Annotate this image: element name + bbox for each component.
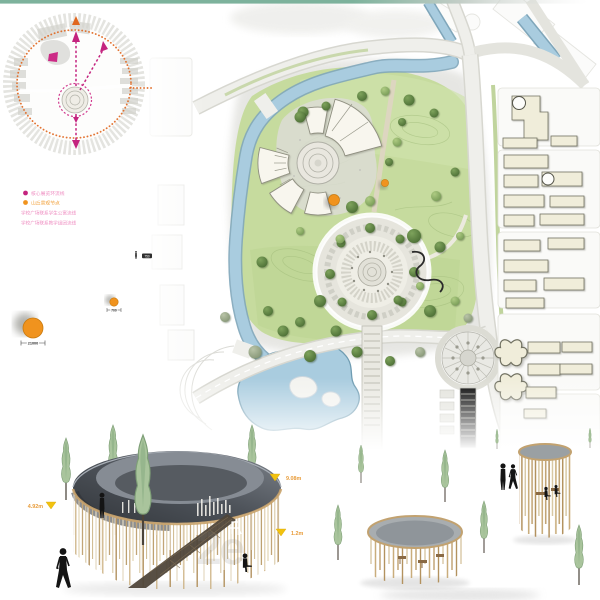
- legend-dot: [23, 191, 28, 196]
- dimension-label-small: 700: [111, 309, 117, 313]
- elevation-marker-left: 4.92m: [28, 502, 56, 510]
- elevation-label: 4.92m: [28, 504, 43, 510]
- person-walking: [56, 548, 71, 588]
- elevation-marker-right-top: 9.08m: [270, 474, 301, 482]
- site-plan: [140, 0, 600, 468]
- legend-label: 核心展览环流线: [31, 190, 65, 197]
- dimension-label-large: 21000: [28, 342, 39, 346]
- tall-circle-pavilion: [513, 444, 577, 545]
- circulation-diagram: [10, 16, 153, 150]
- scale-figures: 750 700 21000: [14, 251, 152, 346]
- person-standing: [500, 463, 505, 490]
- tree: [334, 505, 342, 560]
- top-accent-bar: [0, 0, 588, 4]
- tree: [62, 438, 71, 500]
- scale-tag-label: 750: [144, 254, 150, 258]
- main-pavilion: [73, 451, 281, 593]
- elevation-label: 1.2m: [291, 531, 303, 537]
- tiny-person-icon: [135, 251, 137, 259]
- legend-label: 学校广场联系教学组团流线: [21, 220, 77, 227]
- elevation-label: 9.08m: [286, 476, 301, 482]
- diagram-legend: 核心展览环流线 山丘景观节点 学校广场联系学生公寓流线 学校广场联系教学组团流线: [21, 190, 77, 227]
- presentation-board: 核心展览环流线 山丘景观节点 学校广场联系学生公寓流线 学校广场联系教学组团流线…: [0, 0, 600, 600]
- legend-label: 学校广场联系学生公寓流线: [21, 210, 77, 217]
- legend-dot: [23, 200, 28, 205]
- legend-label: 山丘景观节点: [31, 200, 60, 207]
- elevation-triangle-icon: [46, 502, 56, 509]
- board-canvas: 核心展览环流线 山丘景观节点 学校广场联系学生公寓流线 学校广场联系教学组团流线…: [0, 0, 600, 600]
- sunken-circle-pavilion: [360, 516, 470, 589]
- watermark: 2e: [196, 522, 245, 574]
- orange-node-icon: [329, 195, 340, 206]
- orange-node-small: [110, 298, 118, 306]
- tree: [480, 501, 488, 553]
- orange-node-large: [23, 318, 43, 338]
- orange-node-icon: [381, 179, 388, 186]
- plan-left-fade: [140, 50, 204, 450]
- tree: [575, 525, 584, 585]
